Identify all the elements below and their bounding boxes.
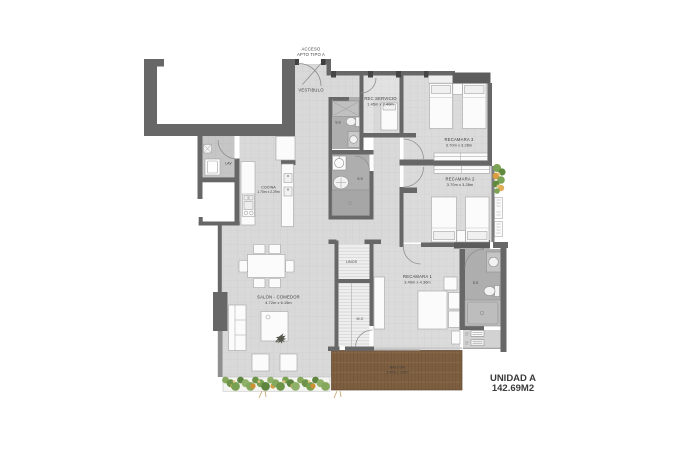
svg-text:3.40m x 1.80m: 3.40m x 1.80m: [386, 371, 409, 375]
svg-text:4.72m x 6.15m: 4.72m x 6.15m: [265, 301, 291, 305]
svg-text:ACCESO: ACCESO: [302, 47, 321, 52]
svg-text:COCINA: COCINA: [261, 186, 276, 190]
svg-text:RECAMARA 3: RECAMARA 3: [445, 137, 474, 142]
svg-text:S.S: S.S: [335, 121, 341, 125]
svg-text:S.S: S.S: [357, 177, 363, 181]
svg-text:SALON - COMEDOR: SALON - COMEDOR: [257, 295, 300, 300]
svg-text:142.69M2: 142.69M2: [492, 383, 534, 394]
svg-text:APTO TIPO A: APTO TIPO A: [297, 52, 325, 57]
svg-text:3.70m x 3.28m: 3.70m x 3.28m: [446, 144, 472, 148]
svg-text:RECAMARA 1: RECAMARA 1: [403, 274, 432, 279]
svg-text:3.70m x 3.28m: 3.70m x 3.28m: [447, 183, 473, 187]
svg-text:LINOS: LINOS: [346, 260, 358, 264]
svg-text:3.40m x 4.36m: 3.40m x 4.36m: [404, 281, 430, 285]
svg-text:VESTIBULO: VESTIBULO: [298, 88, 324, 93]
svg-text:1.70m x 2.29m: 1.70m x 2.29m: [257, 190, 280, 194]
svg-text:RECAMARA 2: RECAMARA 2: [446, 177, 475, 182]
svg-text:BALCON: BALCON: [390, 366, 406, 370]
svg-text:S.S: S.S: [473, 281, 479, 285]
svg-text:REC SERVICIO: REC SERVICIO: [364, 96, 397, 101]
svg-text:1.45m x 2.40m: 1.45m x 2.40m: [367, 103, 393, 107]
svg-text:M.C: M.C: [357, 317, 364, 321]
svg-text:LAV: LAV: [225, 162, 232, 166]
